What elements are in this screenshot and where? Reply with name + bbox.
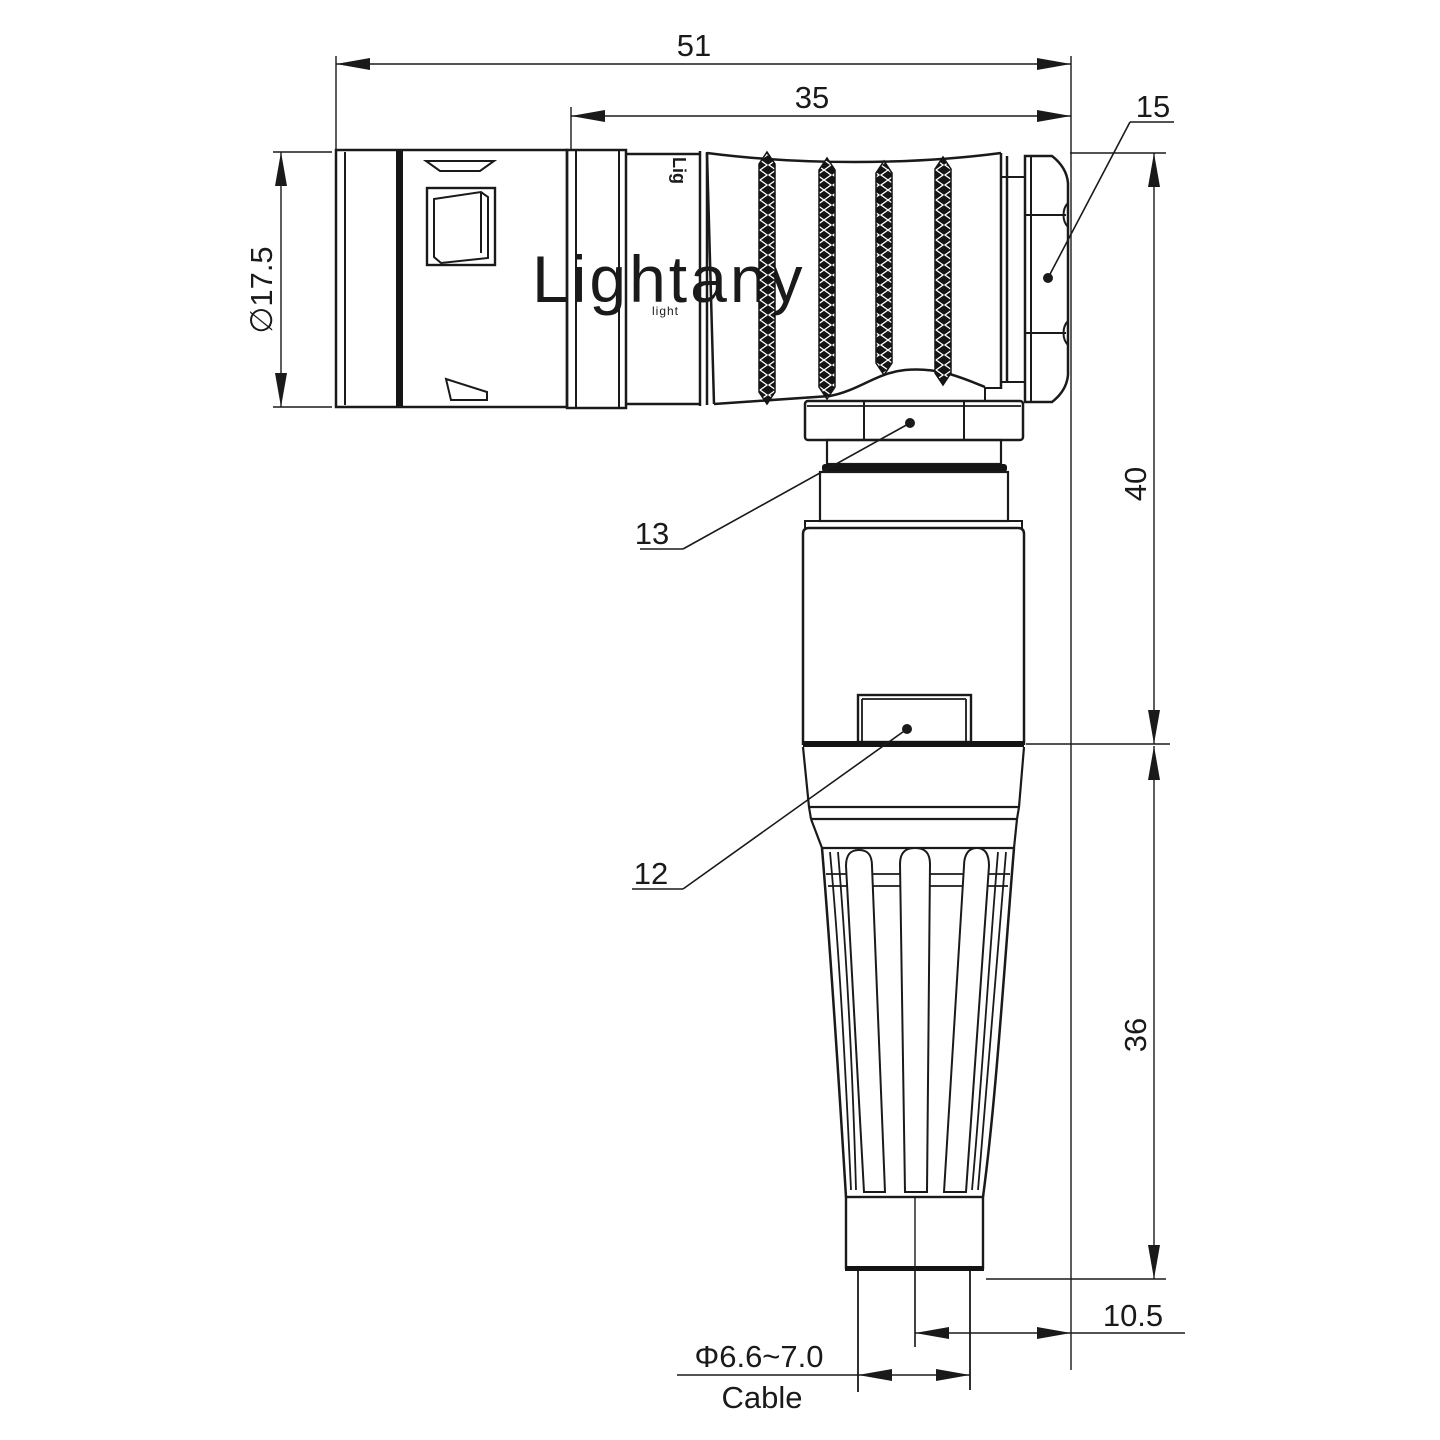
callouts: 15 13 12 xyxy=(632,89,1174,891)
callout-15-text: 15 xyxy=(1136,89,1170,124)
cone-right-edge xyxy=(983,848,1014,1197)
latch-cutout xyxy=(427,188,495,265)
arrow-51-right xyxy=(1037,58,1071,70)
gland-neck xyxy=(827,440,1001,464)
dim-text-cable-dia: Φ6.6~7.0 xyxy=(694,1339,823,1374)
gland-upper-section xyxy=(820,472,1008,521)
arrow-35-left xyxy=(571,110,605,122)
dim-text-51: 51 xyxy=(677,28,711,63)
o-ring xyxy=(822,464,1007,472)
callout-13-coupling-nut: 13 xyxy=(635,418,915,551)
dim-boot-length: 35 xyxy=(571,80,1071,149)
arrow-17-5-bottom xyxy=(275,373,287,407)
knurl-strip-2 xyxy=(819,158,835,399)
boot-right-edge xyxy=(1001,153,1007,389)
dim-plug-diameter: ∅17.5 xyxy=(244,152,332,407)
callout-15-leader xyxy=(1048,122,1130,278)
arrow-35-right xyxy=(1037,110,1071,122)
arrow-17-5-top xyxy=(275,152,287,186)
engraved-logo: Lig xyxy=(669,157,689,184)
dim-text-40: 40 xyxy=(1118,467,1153,501)
ext-lines-17-5 xyxy=(273,152,332,407)
callout-12-dot xyxy=(902,724,912,734)
taper-step-3 xyxy=(811,819,1017,848)
arrow-10-5-left xyxy=(915,1327,949,1339)
taper-step-1 xyxy=(803,747,1024,807)
nut-neck xyxy=(1001,177,1025,382)
separator-band xyxy=(803,741,1024,747)
dim-text-10-5: 10.5 xyxy=(1103,1298,1163,1333)
boot-step xyxy=(985,387,1001,401)
plug-dark-band xyxy=(396,151,403,406)
gland-body xyxy=(803,528,1024,745)
arrow-40-bottom xyxy=(1148,710,1160,744)
knurl-strip-1 xyxy=(759,152,775,404)
technical-drawing: Lightany light xyxy=(0,0,1440,1440)
callout-12-leader xyxy=(683,729,907,889)
drawing-canvas: Lightany light xyxy=(0,0,1440,1440)
arrow-36-bottom xyxy=(1148,1245,1160,1279)
arrow-10-5-right xyxy=(1037,1327,1071,1339)
cable-gland-view xyxy=(803,401,1024,1392)
key-tab-bottom xyxy=(446,379,487,400)
arrow-cable-left xyxy=(858,1369,892,1381)
boot-top-edge xyxy=(707,153,1001,162)
knurl-strip-4 xyxy=(935,157,951,385)
latch-window xyxy=(858,695,971,742)
dim-text-36: 36 xyxy=(1118,1018,1153,1052)
latch-window-inner xyxy=(862,699,966,742)
dim-height-upper: 40 xyxy=(1026,153,1170,744)
taper-step-2 xyxy=(809,807,1019,819)
callout-15-dot xyxy=(1043,273,1053,283)
key-notch-top xyxy=(426,161,494,171)
arrow-36-top xyxy=(1148,746,1160,780)
dim-height-lower: 36 xyxy=(986,746,1166,1279)
dim-axis-offset: 10.5 xyxy=(915,1269,1185,1347)
callout-13-text: 13 xyxy=(635,516,669,551)
callout-12-text: 12 xyxy=(634,856,668,891)
dim-text-35: 35 xyxy=(795,80,829,115)
cable-label: Cable xyxy=(722,1380,803,1415)
watermark-subtext: light xyxy=(652,304,679,318)
dim-cable-diameter: Φ6.6~7.0 Cable xyxy=(677,1339,970,1415)
arrow-40-top xyxy=(1148,153,1160,187)
arrow-51-left xyxy=(336,58,370,70)
latch-tab xyxy=(434,192,488,263)
knurl-strip-3 xyxy=(876,161,892,375)
dim-text-17-5: ∅17.5 xyxy=(244,246,279,333)
cone-rib-left xyxy=(846,850,885,1192)
callout-13-leader xyxy=(683,423,910,549)
cone-rib-center xyxy=(900,848,930,1192)
callout-13-dot xyxy=(905,418,915,428)
dimensions: 51 35 ∅17.5 40 xyxy=(244,28,1185,1415)
arrow-cable-right xyxy=(936,1369,970,1381)
